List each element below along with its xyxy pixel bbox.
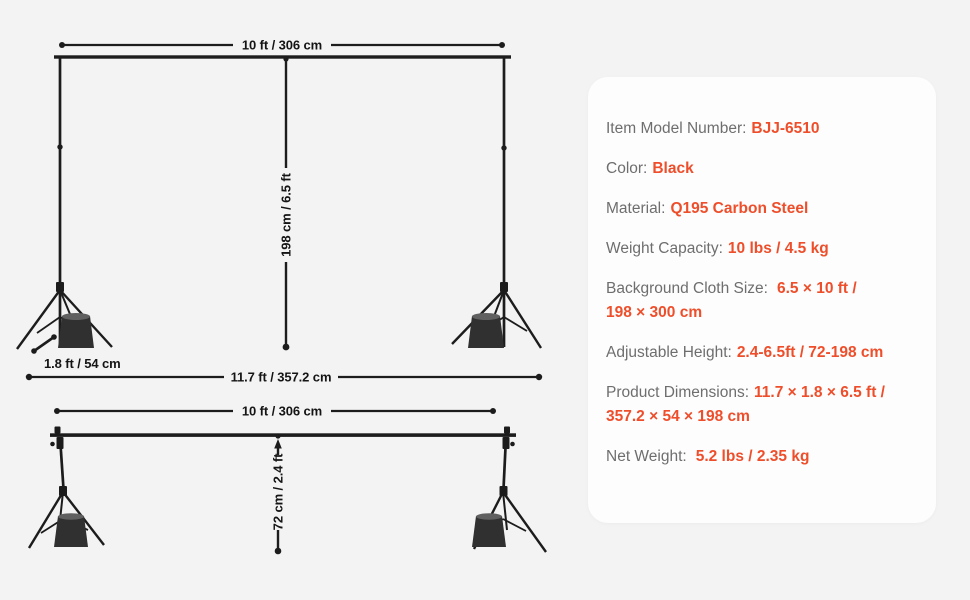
dimension-top-width-collapsed: 10 ft / 306 cm — [54, 404, 496, 419]
left-sandbag-collapsed — [54, 513, 88, 547]
crossbar-width-label-collapsed: 10 ft / 306 cm — [242, 404, 322, 419]
spec-value: BJJ-6510 — [751, 120, 819, 137]
crossbar — [54, 55, 511, 58]
crossbar-collapsed — [50, 433, 516, 437]
spec-value-line2: 357.2 × 54 × 198 cm — [606, 408, 750, 425]
dimension-endpoint-dot — [275, 548, 282, 555]
spec-label: Item Model Number: — [606, 120, 746, 137]
dimension-endpoint-dot — [26, 374, 32, 380]
dimension-stand-height: 198 cm / 6.5 ft — [279, 56, 294, 350]
dimension-endpoint-dot — [536, 374, 542, 380]
right-pole-knob — [501, 145, 506, 150]
left-clamp-knob — [50, 442, 55, 447]
min-height-label: 72 cm / 2.4 ft — [271, 453, 286, 530]
specs-panel: Item Model Number:BJJ-6510 Color:Black M… — [588, 77, 936, 523]
spec-label: Material: — [606, 200, 665, 217]
spec-label: Background Cloth Size: — [606, 280, 768, 297]
spec-row-net-weight: Net Weight:5.2 lbs / 2.35 kg — [606, 445, 922, 469]
crossbar-width-label: 10 ft / 306 cm — [242, 38, 322, 53]
spec-value-line2: 198 × 300 cm — [606, 304, 702, 321]
spec-value: 10 lbs / 4.5 kg — [728, 240, 829, 257]
diagram-full-height: 10 ft / 306 cm — [17, 38, 542, 385]
spec-value: 11.7 × 1.8 × 6.5 ft / — [754, 384, 885, 401]
stand-height-label: 198 cm / 6.5 ft — [279, 172, 294, 257]
left-pole-knob — [57, 144, 62, 149]
spec-row-weight-capacity: Weight Capacity:10 lbs / 4.5 kg — [606, 237, 922, 261]
dimension-diagrams: 10 ft / 306 cm — [0, 0, 575, 600]
base-depth-label: 1.8 ft / 54 cm — [44, 356, 121, 371]
right-clamp-stub — [504, 427, 510, 434]
product-spec-image: 10 ft / 306 cm — [0, 0, 970, 600]
dimension-endpoint-dot — [59, 42, 65, 48]
right-sandbag — [468, 313, 504, 348]
dimension-endpoint-dot — [54, 408, 60, 414]
spec-label: Adjustable Height: — [606, 344, 732, 361]
spec-label: Net Weight: — [606, 448, 687, 465]
spec-row-color: Color:Black — [606, 157, 922, 181]
spec-value: 2.4-6.5ft / 72-198 cm — [737, 344, 883, 361]
spec-value: Q195 Carbon Steel — [670, 200, 808, 217]
spec-label: Color: — [606, 160, 647, 177]
right-sandbag-collapsed — [472, 513, 506, 547]
left-clamp-stub — [55, 427, 61, 434]
dimension-top-width: 10 ft / 306 cm — [59, 38, 505, 53]
dimension-endpoint-dot — [499, 42, 505, 48]
spec-row-model: Item Model Number:BJJ-6510 — [606, 117, 922, 141]
spec-value: 6.5 × 10 ft / — [777, 280, 857, 297]
spec-label: Weight Capacity: — [606, 240, 723, 257]
dimension-endpoint-dot — [490, 408, 496, 414]
right-clamp-knob — [510, 442, 515, 447]
dimension-endpoint-dot — [283, 344, 290, 351]
spec-row-product-dimensions: Product Dimensions:11.7 × 1.8 × 6.5 ft /… — [606, 381, 922, 429]
dimension-total-width: 11.7 ft / 357.2 cm — [26, 370, 542, 385]
spec-value: 5.2 lbs / 2.35 kg — [696, 448, 810, 465]
spec-row-cloth-size: Background Cloth Size:6.5 × 10 ft / 198 … — [606, 277, 922, 325]
total-width-label: 11.7 ft / 357.2 cm — [231, 370, 332, 385]
left-sandbag — [58, 313, 94, 348]
spec-label: Product Dimensions: — [606, 384, 749, 401]
spec-value: Black — [652, 160, 693, 177]
spec-row-material: Material:Q195 Carbon Steel — [606, 197, 922, 221]
dimension-min-height: 72 cm / 2.4 ft — [271, 433, 286, 554]
diagram-collapsed: 10 ft / 306 cm — [29, 404, 546, 555]
spec-row-adjustable-height: Adjustable Height:2.4-6.5ft / 72-198 cm — [606, 341, 922, 365]
